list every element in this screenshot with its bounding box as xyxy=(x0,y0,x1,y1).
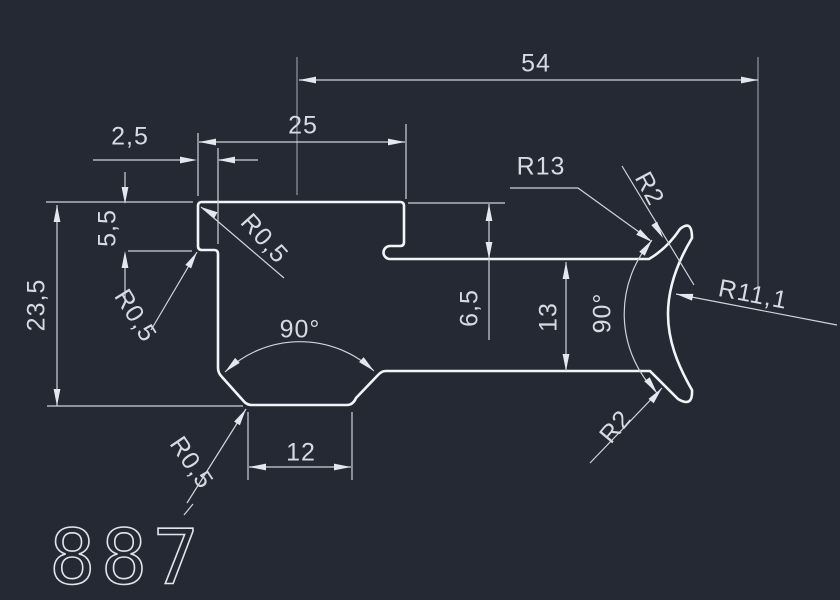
dim-slot-depth-label: 6,5 xyxy=(458,289,483,327)
dim-overall-width-label: 54 xyxy=(521,52,551,77)
part-number: 887 xyxy=(49,513,204,600)
dim-overall-height-label: 23,5 xyxy=(25,279,50,332)
dim-step-width-label: 2,5 xyxy=(111,125,149,150)
cad-viewport[interactable]: 54 25 2,5 5,5 23,5 6,5 13 90° 90° 12 R13… xyxy=(0,0,840,600)
dim-step-depth-label: 5,5 xyxy=(96,209,121,247)
dim-arc-angle-label: 90° xyxy=(591,293,616,334)
radius-outer-arc-label: R13 xyxy=(517,155,566,180)
dim-flange-width-label: 25 xyxy=(288,114,318,139)
dim-v-angle-label: 90° xyxy=(280,318,321,343)
extension-lines xyxy=(46,57,758,480)
dim-flat-width-label: 12 xyxy=(286,441,316,466)
dimension-lines xyxy=(57,80,758,467)
dim-arm-thickness-label: 13 xyxy=(537,302,562,332)
